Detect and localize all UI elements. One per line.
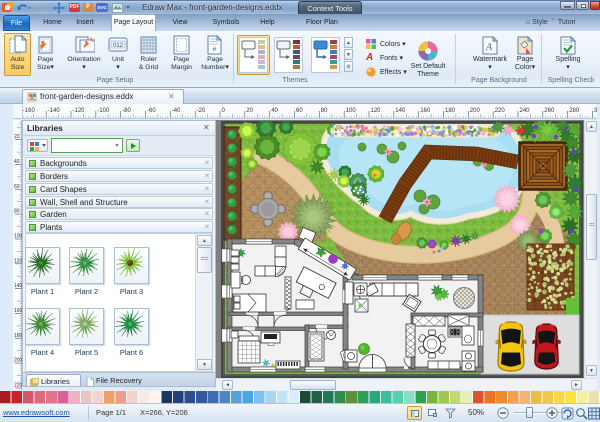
svg-text:40: 40 [14, 159, 20, 165]
svg-text:-20: -20 [197, 108, 206, 114]
svg-text:120: 120 [14, 258, 22, 264]
svg-text:280: 280 [569, 108, 580, 114]
svg-text:220: 220 [495, 108, 506, 114]
svg-text:40: 40 [271, 108, 278, 114]
svg-text:160: 160 [14, 308, 22, 314]
svg-text:220: 220 [14, 383, 22, 389]
svg-text:140: 140 [395, 108, 406, 114]
svg-text:140: 140 [14, 283, 22, 289]
svg-text:-120: -120 [73, 108, 86, 114]
svg-text:-40: -40 [172, 108, 181, 114]
svg-text:A: A [485, 42, 493, 53]
svg-text:240: 240 [520, 108, 531, 114]
svg-text:-160: -160 [23, 108, 36, 114]
svg-text:0: 0 [222, 108, 226, 114]
svg-text:260: 260 [544, 108, 555, 114]
svg-text:180: 180 [445, 108, 456, 114]
svg-text:80: 80 [321, 108, 328, 114]
svg-text:20: 20 [246, 108, 253, 114]
svg-text:-60: -60 [147, 108, 156, 114]
svg-text:300: 300 [594, 108, 597, 114]
svg-text:200: 200 [14, 358, 22, 364]
svg-text:100: 100 [14, 234, 22, 240]
svg-text:80: 80 [14, 209, 20, 215]
svg-text:-80: -80 [122, 108, 131, 114]
svg-text:-140: -140 [48, 108, 61, 114]
svg-text:60: 60 [14, 184, 20, 190]
svg-text:160: 160 [420, 108, 431, 114]
svg-text:012: 012 [113, 43, 124, 49]
svg-text:120: 120 [371, 108, 382, 114]
svg-text:20: 20 [14, 134, 20, 140]
svg-text:200: 200 [470, 108, 481, 114]
svg-text:100: 100 [346, 108, 357, 114]
svg-text:#: # [213, 47, 217, 54]
svg-text:60: 60 [296, 108, 303, 114]
svg-text:180: 180 [14, 333, 22, 339]
svg-text:-100: -100 [97, 108, 110, 114]
